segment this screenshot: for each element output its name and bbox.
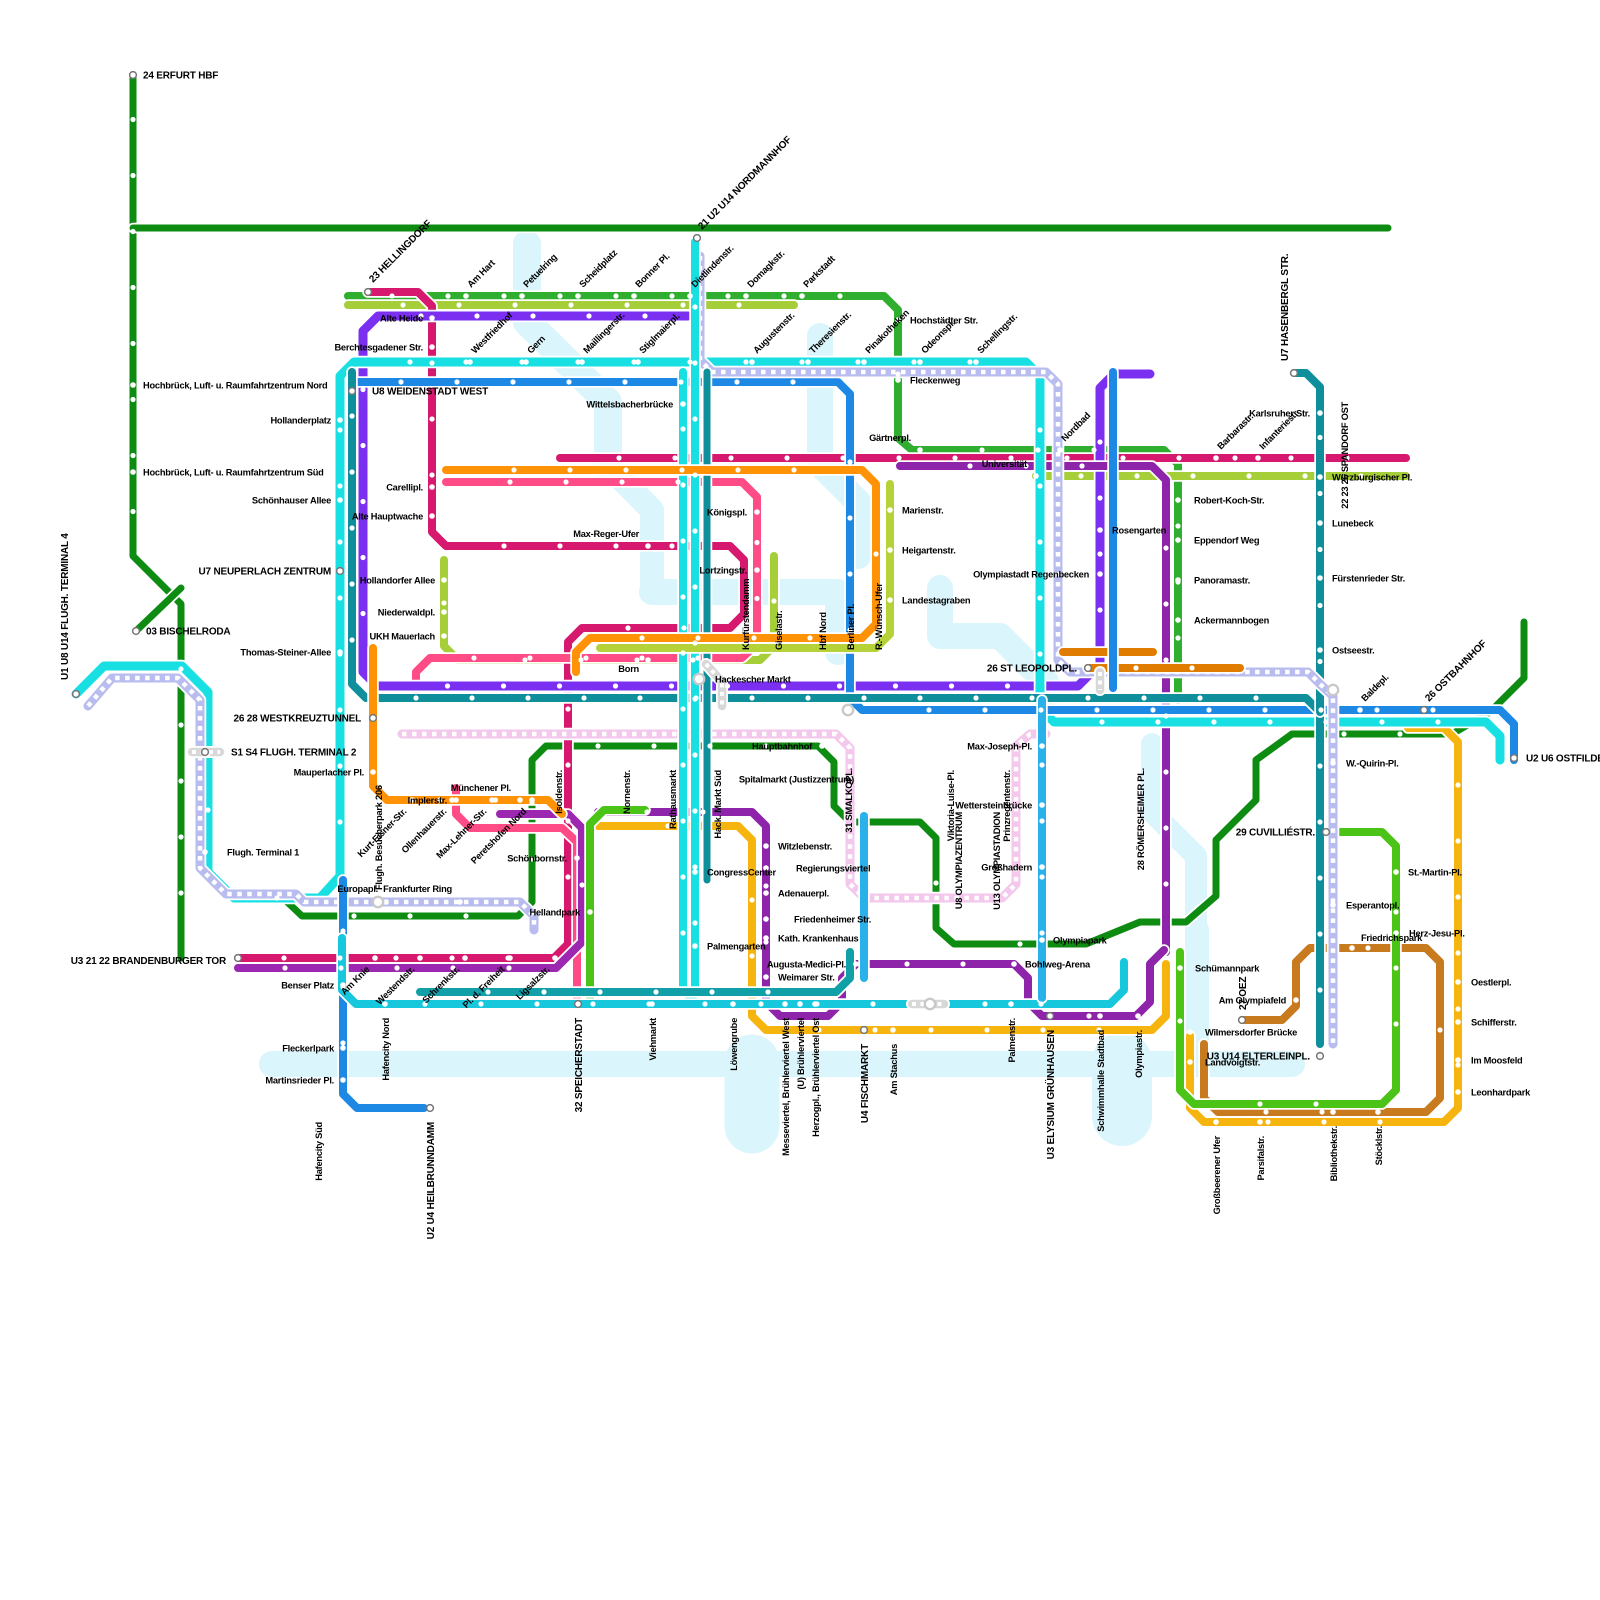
terminus-marker bbox=[427, 1105, 434, 1112]
station-label: Berchtesgadener Str. bbox=[334, 343, 423, 353]
station-label: Herz-Jesu-Pl. bbox=[1409, 929, 1465, 939]
station-marker bbox=[635, 359, 641, 365]
station-label: Am Olympiafeld bbox=[1219, 996, 1287, 1006]
station-marker bbox=[1393, 869, 1399, 875]
station-label: Münchener Pl. bbox=[451, 783, 511, 793]
station-label: Im Moosfeld bbox=[1471, 1056, 1523, 1066]
station-label: Max-Reger-Ufer bbox=[573, 529, 639, 539]
terminus-marker bbox=[130, 72, 137, 79]
terminus-label: U1 U8 U14 FLUGH. TERMINAL 4 bbox=[60, 533, 71, 680]
station-marker bbox=[1455, 1019, 1461, 1025]
station-marker bbox=[579, 359, 585, 365]
terminus-label: 32 SPEICHERSTADT bbox=[574, 1018, 585, 1113]
station-marker bbox=[1317, 520, 1323, 526]
station-label: Esperantopl. bbox=[1346, 901, 1399, 911]
terminus-marker bbox=[349, 388, 356, 395]
terminus-marker bbox=[202, 749, 209, 756]
station-marker bbox=[1213, 455, 1219, 461]
station-label: Thomas-Steiner-Allee bbox=[240, 648, 331, 658]
station-marker bbox=[1330, 760, 1336, 766]
terminus-label: 24 ERFURT HBF bbox=[143, 71, 218, 82]
station-marker bbox=[917, 359, 923, 365]
station-label: Löwengrube bbox=[729, 1018, 739, 1071]
station-marker bbox=[819, 743, 825, 749]
station-label: Marienstr. bbox=[902, 506, 943, 516]
station-marker bbox=[1317, 410, 1323, 416]
terminus-marker bbox=[1291, 370, 1298, 377]
station-marker bbox=[1175, 537, 1181, 543]
station-marker bbox=[337, 497, 343, 503]
terminus-label: U7 HASENBERGL STR. bbox=[1280, 253, 1291, 361]
station-label: Hafencity Nord bbox=[381, 1017, 391, 1080]
terminus-marker bbox=[337, 568, 344, 575]
terminus-label: 26 28 WESTKREUZTUNNEL bbox=[234, 714, 362, 725]
station-label: Parsifalstr. bbox=[1256, 1136, 1266, 1181]
station-label: Robert-Koch-Str. bbox=[1194, 496, 1264, 506]
station-label: Frankfurter Ring bbox=[383, 884, 452, 894]
station-marker bbox=[519, 293, 525, 299]
station-marker bbox=[462, 955, 468, 961]
station-marker bbox=[749, 359, 755, 365]
station-marker bbox=[973, 359, 979, 365]
station-label: Wettersteinbrücke bbox=[955, 801, 1032, 811]
station-label: Großbeerener Ufer bbox=[1212, 1135, 1222, 1214]
station-marker bbox=[1317, 575, 1323, 581]
station-marker bbox=[517, 797, 523, 803]
station-label: Hafencity Süd bbox=[314, 1121, 324, 1180]
transit-map-svg: 24 ERFURT HBFHochbrück, Luft- u. Raumfah… bbox=[0, 0, 1600, 1600]
terminus-marker bbox=[73, 691, 80, 698]
station-label: Wilmersdorfer Brücke bbox=[1205, 1028, 1297, 1038]
station-label: Olympiapark bbox=[1053, 936, 1108, 946]
station-label: Heigartenstr. bbox=[902, 546, 956, 556]
terminus-marker bbox=[694, 235, 701, 242]
terminus-marker bbox=[365, 289, 372, 296]
station-marker bbox=[1455, 979, 1461, 985]
station-label: Isoldenstr. bbox=[554, 770, 564, 814]
station-marker bbox=[754, 509, 760, 515]
station-marker bbox=[763, 843, 769, 849]
terminus-marker bbox=[861, 1027, 868, 1034]
station-marker bbox=[1177, 965, 1183, 971]
interchange-marker bbox=[843, 705, 853, 715]
station-label: UKH Mauerlach bbox=[370, 632, 436, 642]
terminus-marker bbox=[1085, 665, 1092, 672]
station-marker bbox=[763, 935, 769, 941]
station-label: Hbf Nord bbox=[818, 612, 828, 650]
station-marker bbox=[645, 543, 651, 549]
station-label: Rathausmarkt bbox=[668, 770, 678, 829]
station-marker bbox=[441, 609, 447, 615]
terminus-label: U3 U14 ELTERLEINPL. bbox=[1207, 1052, 1311, 1063]
station-marker bbox=[1255, 455, 1261, 461]
terminus-label: 26 ST LEOPOLDPL. bbox=[987, 664, 1078, 675]
station-marker bbox=[1330, 902, 1336, 908]
station-label: Hellandpark bbox=[530, 908, 582, 918]
station-label: Schönhauser Allee bbox=[252, 496, 331, 506]
station-marker bbox=[417, 955, 423, 961]
station-label: Europapl. bbox=[337, 884, 378, 894]
station-marker bbox=[337, 649, 343, 655]
station-marker bbox=[552, 955, 558, 961]
station-marker bbox=[805, 359, 811, 365]
station-marker bbox=[1175, 577, 1181, 583]
station-marker bbox=[130, 382, 136, 388]
station-label: Viehmarkt bbox=[648, 1018, 658, 1061]
station-label: Weimarer Str. bbox=[778, 973, 835, 983]
station-label: St.-Martin-Pl. bbox=[1408, 868, 1462, 878]
station-label: Adenauerpl. bbox=[778, 889, 829, 899]
station-marker bbox=[1039, 864, 1045, 870]
station-label: W.-Quirin-Pl. bbox=[1346, 759, 1399, 769]
terminus-label: U8 WEIDENSTADT WEST bbox=[372, 387, 488, 398]
interchange-marker bbox=[925, 999, 935, 1009]
station-marker bbox=[1008, 1001, 1014, 1007]
station-marker bbox=[429, 344, 435, 350]
station-label: Bohlweg-Arena bbox=[1025, 960, 1091, 970]
station-marker bbox=[763, 916, 769, 922]
station-marker bbox=[1257, 1119, 1263, 1125]
station-label: Alte Heide bbox=[380, 314, 423, 324]
station-marker bbox=[1175, 617, 1181, 623]
transit-map: 24 ERFURT HBFHochbrück, Luft- u. Raumfah… bbox=[0, 0, 1600, 1600]
station-label: Augusta-Medici-Pl. bbox=[767, 960, 846, 970]
station-marker bbox=[1097, 527, 1103, 533]
terminus-marker bbox=[133, 628, 140, 635]
station-marker bbox=[649, 1001, 655, 1007]
station-marker bbox=[743, 293, 749, 299]
station-label: CongressCenter bbox=[707, 868, 776, 878]
station-marker bbox=[529, 797, 535, 803]
station-marker bbox=[507, 955, 513, 961]
station-label: Wittelsbacherbrücke bbox=[586, 400, 673, 410]
station-marker bbox=[372, 955, 378, 961]
station-label: Am Stachus bbox=[889, 1044, 899, 1095]
station-label: Implerstr. bbox=[408, 796, 447, 806]
station-marker bbox=[1097, 571, 1103, 577]
station-marker bbox=[340, 1077, 346, 1083]
station-marker bbox=[754, 567, 760, 573]
station-marker bbox=[1317, 647, 1323, 653]
station-marker bbox=[861, 776, 867, 782]
station-marker bbox=[692, 869, 698, 875]
station-marker bbox=[763, 890, 769, 896]
station-label: Kurfürstendamm bbox=[741, 579, 751, 650]
station-label: Nornenstr. bbox=[622, 770, 632, 814]
station-marker bbox=[337, 417, 343, 423]
station-marker bbox=[574, 855, 580, 861]
terminus-marker bbox=[370, 715, 377, 722]
station-marker bbox=[1455, 1089, 1461, 1095]
station-marker bbox=[441, 577, 447, 583]
station-label: Regierungsviertel bbox=[796, 864, 870, 874]
terminus-marker bbox=[1421, 707, 1428, 714]
station-marker bbox=[730, 1001, 736, 1007]
station-label: 22 23 26 SPANDORF OST bbox=[1340, 401, 1350, 508]
station-label: Martinsrieder Pl. bbox=[265, 1076, 334, 1086]
station-marker bbox=[887, 597, 893, 603]
station-marker bbox=[575, 293, 581, 299]
station-marker bbox=[692, 943, 698, 949]
station-marker bbox=[463, 293, 469, 299]
station-marker bbox=[895, 377, 901, 383]
station-label: Viktoria-Luise-Pl. bbox=[946, 770, 956, 841]
station-marker bbox=[587, 909, 593, 915]
terminus-marker bbox=[235, 955, 242, 962]
station-label: Universität bbox=[982, 459, 1027, 469]
station-marker bbox=[1039, 937, 1045, 943]
station-label: Hollanderplatz bbox=[270, 416, 331, 426]
station-label: Lortzingstr. bbox=[699, 566, 747, 576]
station-label: Gärtnerpl. bbox=[869, 433, 911, 443]
station-label: Hollandorfer Allee bbox=[360, 576, 435, 586]
terminus-label: U3 ELYSIUM GRÜNHAUSEN bbox=[1044, 1030, 1057, 1159]
station-marker bbox=[429, 315, 435, 321]
station-marker bbox=[890, 1027, 896, 1033]
station-label: Hauptbahnhof bbox=[752, 742, 813, 752]
station-marker bbox=[782, 1001, 788, 1007]
station-label: Großhadern bbox=[981, 863, 1032, 873]
station-label: Kath. Krankenhaus bbox=[778, 934, 859, 944]
station-marker bbox=[1187, 1029, 1193, 1035]
station-label: Schwimmhalle Stadtbad bbox=[1096, 1029, 1106, 1131]
station-marker bbox=[1375, 1109, 1381, 1115]
station-label: Palmenstr. bbox=[1007, 1018, 1017, 1063]
station-marker bbox=[130, 469, 136, 475]
transit-map-page: 24 ERFURT HBFHochbrück, Luft- u. Raumfah… bbox=[0, 0, 1600, 1600]
interchange-marker bbox=[373, 897, 383, 907]
station-marker bbox=[202, 849, 208, 855]
terminus-marker bbox=[1323, 829, 1330, 836]
station-label: Max-Joseph-Pl. bbox=[967, 742, 1032, 752]
station-marker bbox=[1357, 707, 1363, 713]
station-label: Mauperlacher Pl. bbox=[294, 768, 364, 778]
station-marker bbox=[457, 899, 463, 905]
terminus-marker bbox=[1047, 1013, 1054, 1020]
station-marker bbox=[1349, 945, 1355, 951]
interchange-marker bbox=[1328, 685, 1338, 695]
station-label: Oestlerpl. bbox=[1471, 978, 1511, 988]
station-label: Fleckenweg bbox=[910, 376, 961, 386]
station-marker bbox=[680, 401, 686, 407]
station-label: Leonhardpark bbox=[1471, 1088, 1531, 1098]
terminus-label: U4 FISCHMARKT bbox=[860, 1044, 871, 1123]
station-marker bbox=[799, 293, 805, 299]
station-marker bbox=[1097, 1013, 1103, 1019]
station-label: Fleckerlpark bbox=[282, 1044, 335, 1054]
station-label: Hochbrück, Luft- u. Raumfahrtzentrum Süd bbox=[143, 468, 324, 478]
station-marker bbox=[887, 507, 893, 513]
station-label: Königspl. bbox=[707, 508, 747, 518]
station-marker bbox=[645, 657, 651, 663]
station-label: Palmengarten bbox=[707, 942, 766, 952]
station-label: Herzogpl., Brühlerviertel Ost bbox=[811, 1018, 821, 1137]
station-label: Benser Platz bbox=[281, 981, 334, 991]
station-label: Carellipl. bbox=[386, 483, 423, 493]
station-marker bbox=[1011, 961, 1017, 967]
station-label: Born bbox=[618, 664, 639, 674]
station-marker bbox=[467, 359, 473, 365]
station-label: Olympiastadt Regenbecken bbox=[973, 570, 1090, 580]
terminus-marker bbox=[1511, 755, 1518, 762]
station-marker bbox=[1293, 997, 1299, 1003]
station-label: Ackermannbogen bbox=[1194, 616, 1270, 626]
station-marker bbox=[1213, 1119, 1219, 1125]
station-label: Messeviertel, Brühlerviertel West bbox=[781, 1018, 791, 1156]
station-label: (U) Brühlerviertel bbox=[796, 1018, 806, 1089]
station-label: Prinzregentenstr. bbox=[1002, 770, 1012, 842]
station-label: Schönbornstr. bbox=[507, 854, 567, 864]
terminus-label: 03 BISCHELRODA bbox=[146, 627, 230, 638]
station-marker bbox=[1187, 1059, 1193, 1065]
station-marker bbox=[370, 769, 376, 775]
station-marker bbox=[853, 961, 859, 967]
station-label: Fürstenrieder Str. bbox=[1332, 574, 1405, 584]
station-label: Lunebeck bbox=[1332, 519, 1374, 529]
station-label: Olympiastr. bbox=[1134, 1030, 1144, 1078]
station-marker bbox=[861, 359, 867, 365]
station-marker bbox=[523, 359, 529, 365]
station-label: Eppendorf Weg bbox=[1194, 536, 1260, 546]
station-marker bbox=[687, 293, 693, 299]
station-label: R.-Wünsch-Ufer bbox=[874, 583, 884, 650]
station-label: Berliner Pl. bbox=[846, 604, 856, 650]
station-label: Alte Hauptwache bbox=[352, 512, 423, 522]
station-label: Hackescher Markt bbox=[715, 675, 791, 685]
station-marker bbox=[797, 1001, 803, 1007]
terminus-label: U2 U6 OSTFILDERN bbox=[1526, 754, 1600, 765]
station-label: Giselastr. bbox=[774, 611, 784, 650]
station-label: U13 OLYMPIASTADION bbox=[992, 811, 1002, 909]
station-label: Friedenheimer Str. bbox=[794, 915, 871, 925]
interchange-marker bbox=[694, 674, 704, 684]
station-marker bbox=[340, 1045, 346, 1051]
station-marker bbox=[449, 797, 455, 803]
terminus-label: U2 U4 HEILBRUNNDAMM bbox=[426, 1122, 437, 1239]
station-label: Hochbrück, Luft- u. Raumfahrtzentrum Nor… bbox=[143, 381, 328, 391]
station-marker bbox=[441, 633, 447, 639]
station-label: Landestagraben bbox=[902, 596, 971, 606]
station-marker bbox=[763, 974, 769, 980]
station-marker bbox=[1317, 474, 1323, 480]
station-label: Schümannpark bbox=[1195, 964, 1260, 974]
station-marker bbox=[489, 797, 495, 803]
station-marker bbox=[631, 293, 637, 299]
station-marker bbox=[1455, 1057, 1461, 1063]
terminus-label: U7 NEUPERLACH ZENTRUM bbox=[199, 567, 331, 578]
station-marker bbox=[315, 1105, 321, 1111]
station-label: Stöcklstr. bbox=[1374, 1126, 1384, 1165]
station-label: Witzlebenstr. bbox=[778, 842, 832, 852]
station-marker bbox=[429, 484, 435, 490]
station-marker bbox=[1135, 1013, 1141, 1019]
station-label: Panoramastr. bbox=[1194, 576, 1250, 586]
station-marker bbox=[1039, 802, 1045, 808]
station-marker bbox=[812, 1001, 818, 1007]
terminus-marker bbox=[1317, 1053, 1324, 1060]
station-label: Spitalmarkt (Justizzentrum) bbox=[739, 775, 854, 785]
station-label: Niederwaldpl. bbox=[378, 608, 435, 618]
terminus-label: 29 CUVILLIÉSTR. bbox=[1236, 826, 1316, 839]
station-marker bbox=[1033, 473, 1039, 479]
station-label: Hack. Markt Süd bbox=[713, 769, 723, 838]
station-marker bbox=[1175, 497, 1181, 503]
station-marker bbox=[1057, 447, 1063, 453]
station-label: 28 RÖMERSHEIMER PL. bbox=[1136, 768, 1146, 870]
station-marker bbox=[887, 547, 893, 553]
map-background bbox=[0, 0, 1600, 1600]
terminus-marker bbox=[575, 1001, 582, 1008]
station-marker bbox=[917, 447, 923, 453]
terminus-marker bbox=[1239, 1017, 1246, 1024]
terminus-label: U3 21 22 BRANDENBURGER TOR bbox=[71, 956, 227, 967]
station-marker bbox=[429, 513, 435, 519]
station-label: Rosengarten bbox=[1112, 526, 1167, 536]
station-label: Flugh. Terminal 1 bbox=[227, 848, 299, 858]
station-label: Karlsruher Str. bbox=[1249, 409, 1310, 419]
station-marker bbox=[1330, 1109, 1336, 1115]
station-label: Bibliothekstr. bbox=[1329, 1126, 1339, 1181]
station-label: Ostseestr. bbox=[1332, 646, 1374, 656]
station-marker bbox=[1039, 743, 1045, 749]
terminus-label: S1 S4 FLUGH. TERMINAL 2 bbox=[231, 748, 357, 759]
station-label: Schifferstr. bbox=[1471, 1018, 1517, 1028]
